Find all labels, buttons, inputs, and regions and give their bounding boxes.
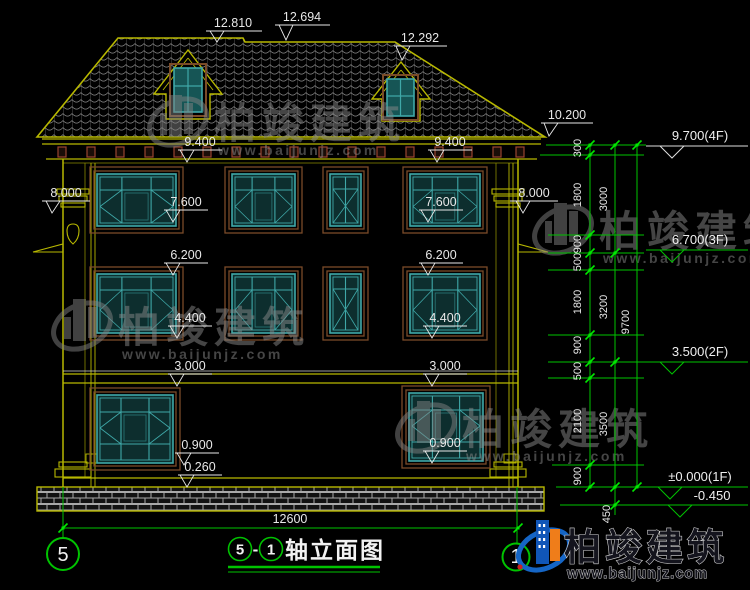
elev-text: 7.600 (425, 195, 456, 209)
eave-dim-text: 10.200 (548, 108, 586, 122)
dim-label: 500 (572, 362, 584, 380)
site-logo: 柏竣建筑 www.baijunjz.com (512, 520, 728, 582)
elev-text: 7.600 (170, 195, 201, 209)
level-text-4f: 9.700(4F) (672, 128, 728, 143)
dim-label: 300 (572, 139, 584, 157)
axis-number: 5 (57, 544, 68, 566)
dim-label: 900 (572, 235, 584, 253)
elev-text: 9.400 (434, 135, 465, 149)
level-marker-4f: 9.700(4F) (646, 128, 748, 158)
dim-label: 900 (572, 336, 584, 354)
drawing-title: 5 - 1 轴立面图 (228, 537, 385, 572)
level-text-3f: 6.700(3F) (672, 232, 728, 247)
level-text-1f: ±0.000(1F) (668, 469, 732, 484)
window (323, 267, 368, 340)
ridge-dim-text: 12.292 (401, 31, 439, 45)
dim-label: 1800 (572, 290, 584, 314)
dim-label: 500 (572, 253, 584, 271)
floor-level-markers: 9.700(4F) 6.700(3F) 3.500(2F) ±0.000(1F)… (646, 128, 748, 517)
title-text: 轴立面图 (285, 537, 385, 563)
dim-label: 3500 (598, 412, 610, 436)
axis-bubble-left: 5 (47, 538, 79, 570)
site-logo-url: www.baijunjz.com (566, 566, 708, 582)
window (323, 167, 368, 233)
total-width-text: 12600 (273, 512, 308, 526)
dim-label: 900 (572, 467, 584, 485)
elev-text: 0.900 (181, 438, 212, 452)
elev-text: 0.900 (429, 436, 460, 450)
title-separator: - (253, 540, 259, 559)
elev-text: 4.400 (174, 311, 205, 325)
dim-label: 1800 (572, 183, 584, 207)
elev-text: 6.200 (170, 248, 201, 262)
window (90, 388, 180, 470)
elev-text: 3.000 (429, 359, 460, 373)
dim-label-foundation: 450 (601, 505, 613, 523)
cad-elevation-canvas: 柏竣建筑 www.baijunjz.com (0, 0, 750, 590)
chain-dimension-labels: 300 1800 900 500 1800 900 500 2100 900 3… (572, 139, 632, 523)
elev-text: 3.000 (174, 359, 205, 373)
window (90, 167, 183, 233)
level-marker-2f: 3.500(2F) (646, 344, 748, 374)
dim-label-total-height: 9700 (620, 310, 632, 334)
elev-text: 0.260 (184, 460, 215, 474)
dim-label: 2100 (572, 409, 584, 433)
elev-text: 8.000 (50, 186, 81, 200)
window (225, 167, 302, 233)
level-text-ground: -0.450 (694, 488, 731, 503)
level-marker-ground: -0.450 (654, 488, 748, 517)
dim-label: 3000 (598, 187, 610, 211)
elev-text: 4.400 (429, 311, 460, 325)
elev-text: 9.400 (184, 135, 215, 149)
plinth-brick-band (37, 487, 544, 511)
elevation-drawing: 柏竣建筑 www.baijunjz.com (0, 0, 750, 590)
level-text-2f: 3.500(2F) (672, 344, 728, 359)
elev-text: 8.000 (518, 186, 549, 200)
title-axis-left: 5 (236, 542, 244, 559)
title-axis-right: 1 (267, 542, 275, 559)
ridge-dim-text: 12.694 (283, 10, 321, 24)
site-logo-brand: 柏竣建筑 (564, 526, 728, 568)
elev-text: 6.200 (425, 248, 456, 262)
window (403, 267, 487, 340)
dim-label: 3200 (598, 295, 610, 319)
ridge-dim-text: 12.810 (214, 16, 252, 30)
